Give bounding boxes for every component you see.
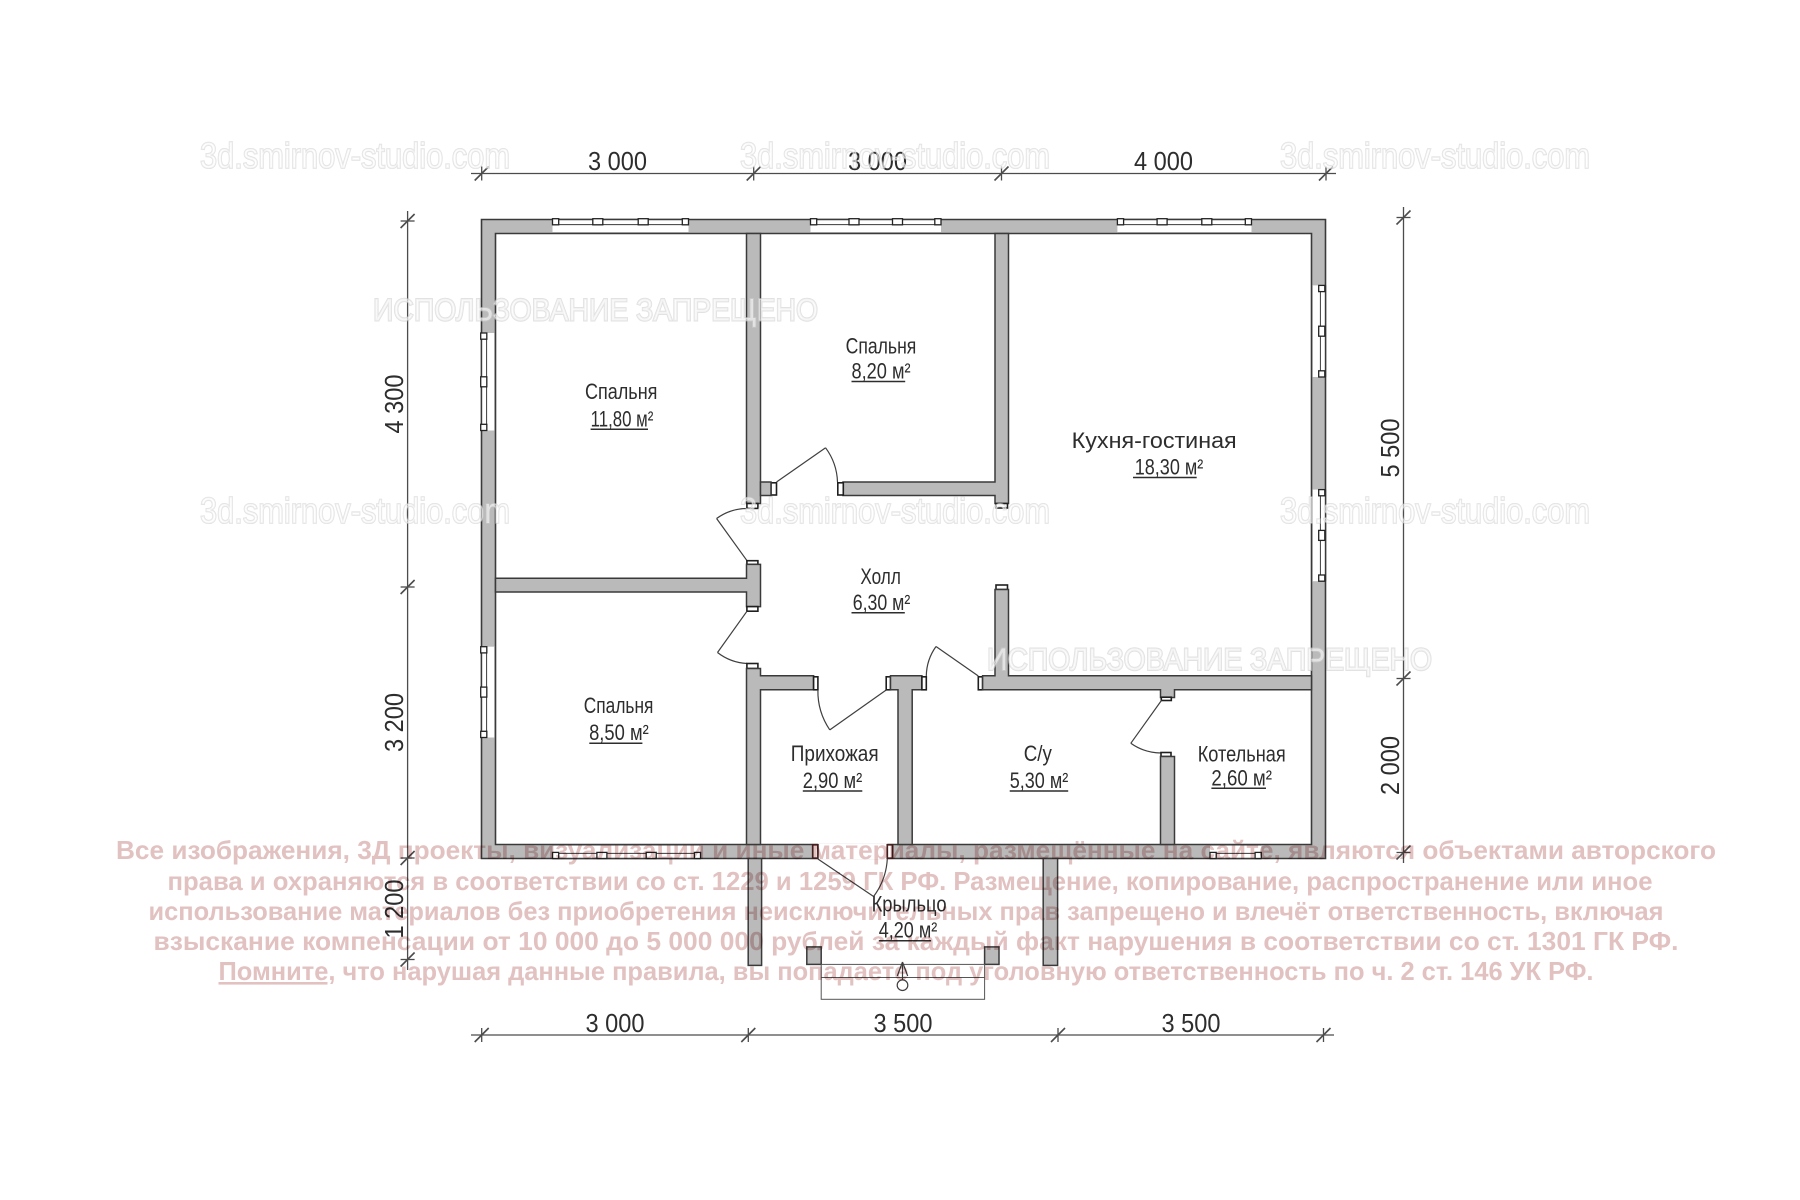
svg-text:Помните, что нарушая данные пр: Помните, что нарушая данные правила, вы …	[219, 956, 1594, 986]
svg-text:Прихожая: Прихожая	[791, 741, 879, 766]
svg-text:С/у: С/у	[1024, 741, 1052, 766]
svg-text:3d.smirnov-studio.com: 3d.smirnov-studio.com	[740, 490, 1050, 531]
svg-text:3 200: 3 200	[379, 693, 409, 752]
svg-text:использование материалов без п: использование материалов без приобретени…	[149, 896, 1664, 926]
svg-text:3 000: 3 000	[588, 146, 647, 176]
svg-text:8,20 м²: 8,20 м²	[851, 359, 910, 384]
svg-text:18,30 м²: 18,30 м²	[1135, 455, 1204, 480]
svg-text:3 500: 3 500	[874, 1008, 933, 1038]
svg-text:3 000: 3 000	[586, 1008, 645, 1038]
svg-text:взыскание компенсации от 10 00: взыскание компенсации от 10 000 до 5 000…	[154, 926, 1679, 956]
svg-text:Все изображения, 3Д проекты, в: Все изображения, 3Д проекты, визуализаци…	[116, 835, 1716, 865]
svg-text:4 300: 4 300	[379, 375, 409, 434]
svg-text:2 000: 2 000	[1375, 736, 1405, 795]
svg-text:3d.smirnov-studio.com: 3d.smirnov-studio.com	[740, 135, 1050, 176]
svg-text:3d.smirnov-studio.com: 3d.smirnov-studio.com	[200, 135, 510, 176]
svg-text:6,30 м²: 6,30 м²	[853, 590, 911, 615]
svg-text:3 500: 3 500	[1162, 1008, 1221, 1038]
svg-text:8,50 м²: 8,50 м²	[589, 720, 649, 745]
svg-text:5 500: 5 500	[1375, 419, 1405, 478]
svg-text:3d.smirnov-studio.com: 3d.smirnov-studio.com	[1280, 135, 1590, 176]
svg-text:3d.smirnov-studio.com: 3d.smirnov-studio.com	[1280, 490, 1590, 531]
svg-text:Спальня: Спальня	[846, 333, 917, 358]
svg-text:11,80 м²: 11,80 м²	[591, 407, 654, 432]
svg-text:3d.smirnov-studio.com: 3d.smirnov-studio.com	[200, 490, 510, 531]
svg-text:ИСПОЛЬЗОВАНИЕ ЗАПРЕЩЕНО: ИСПОЛЬЗОВАНИЕ ЗАПРЕЩЕНО	[987, 641, 1432, 677]
svg-text:4 000: 4 000	[1134, 146, 1193, 176]
svg-text:Кухня-гостиная: Кухня-гостиная	[1072, 428, 1237, 453]
svg-text:Холл: Холл	[860, 564, 901, 589]
svg-text:2,60 м²: 2,60 м²	[1211, 766, 1272, 791]
svg-text:Спальня: Спальня	[585, 379, 658, 404]
svg-text:2,90 м²: 2,90 м²	[803, 768, 863, 793]
svg-text:Котельная: Котельная	[1198, 742, 1286, 767]
svg-text:права и охраняются в соответст: права и охраняются в соответствии со ст.…	[168, 866, 1653, 896]
svg-text:5,30 м²: 5,30 м²	[1010, 768, 1069, 793]
svg-text:Спальня: Спальня	[584, 693, 654, 718]
svg-text:ИСПОЛЬЗОВАНИЕ ЗАПРЕЩЕНО: ИСПОЛЬЗОВАНИЕ ЗАПРЕЩЕНО	[373, 292, 818, 328]
